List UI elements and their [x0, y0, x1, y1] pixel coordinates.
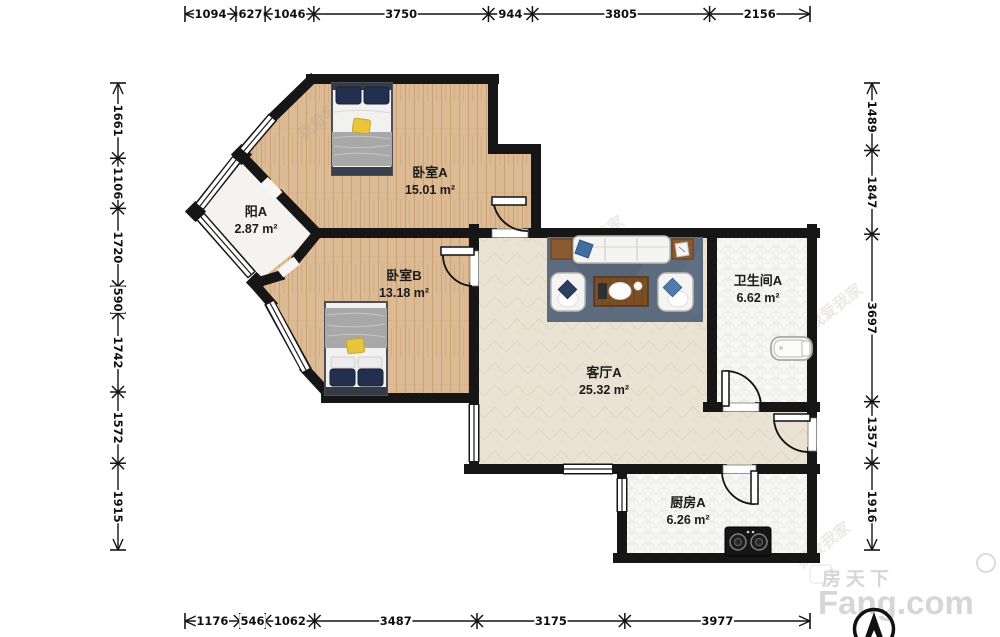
stove: [725, 527, 771, 556]
dim-top-3: 3750: [385, 7, 417, 21]
dim-left-0: 1661: [111, 105, 125, 137]
dim-right-0: 1489: [865, 101, 879, 133]
dim-left-4: 1742: [111, 337, 125, 369]
dim-left-5: 1572: [111, 412, 125, 444]
dim-left-2: 1720: [111, 231, 125, 263]
dim-bottom-5: 3977: [701, 614, 733, 628]
compass-north-icon: [855, 610, 894, 637]
brand-watermark: 房天下 Fang.com: [810, 554, 995, 621]
room-area-balcony-a: 2.87 m²: [234, 222, 277, 236]
room-area-kitchen-a: 6.26 m²: [666, 513, 709, 527]
bed-b: [325, 302, 387, 395]
dim-top-0: 1094: [194, 7, 226, 21]
floorplan-svg: 我爱我家我爱我家我爱我家我爱我家: [0, 0, 1000, 637]
dim-top-6: 2156: [744, 7, 776, 21]
dim-right-4: 1916: [865, 491, 879, 523]
room-area-living-a: 25.32 m²: [579, 383, 629, 397]
dim-bottom-0: 1176: [196, 614, 228, 628]
dim-top-1: 627: [239, 7, 263, 21]
bed-a: [332, 83, 392, 175]
sofa-set: [547, 236, 703, 322]
room-label-bathroom-a: 卫生间A: [734, 273, 783, 288]
room-label-bedroom-a: 卧室A: [412, 165, 448, 180]
dim-left-6: 1915: [111, 491, 125, 523]
brand-en-text: Fang.com: [818, 584, 974, 621]
dim-right-2: 3697: [865, 302, 879, 334]
dim-top-2: 1046: [273, 7, 305, 21]
dim-top-5: 3805: [605, 7, 637, 21]
room-area-bathroom-a: 6.62 m²: [736, 291, 779, 305]
dim-left-3: 590: [111, 288, 125, 312]
floor-kitchen: [622, 469, 812, 558]
dim-right-3: 1357: [865, 416, 879, 448]
dimension-chain-left: 166111061720590174215721915: [110, 83, 126, 550]
floorplan-image: 我爱我家我爱我家我爱我家我爱我家: [0, 0, 1000, 637]
dim-bottom-2: 1062: [274, 614, 306, 628]
room-label-bedroom-b: 卧室B: [386, 268, 421, 283]
dim-bottom-3: 3487: [380, 614, 412, 628]
bathtub: [771, 337, 812, 360]
room-area-bedroom-a: 15.01 m²: [405, 183, 455, 197]
coffee-table: [594, 277, 648, 306]
dim-right-1: 1847: [865, 176, 879, 208]
dim-bottom-4: 3175: [535, 614, 567, 628]
side-table-left: [551, 239, 572, 259]
dimension-chain-bottom: 11765461062348731753977: [185, 613, 810, 629]
dim-top-4: 944: [498, 7, 522, 21]
room-label-kitchen-a: 厨房A: [670, 495, 706, 510]
room-label-balcony-a: 阳A: [245, 204, 268, 219]
dimension-chain-top: 10946271046375094438052156: [185, 6, 810, 22]
dimension-chain-right: 14891847369713571916: [864, 83, 880, 550]
dim-left-1: 1106: [111, 167, 125, 199]
room-area-bedroom-b: 13.18 m²: [379, 286, 429, 300]
dim-bottom-1: 546: [240, 614, 264, 628]
room-label-living-a: 客厅A: [586, 365, 622, 380]
